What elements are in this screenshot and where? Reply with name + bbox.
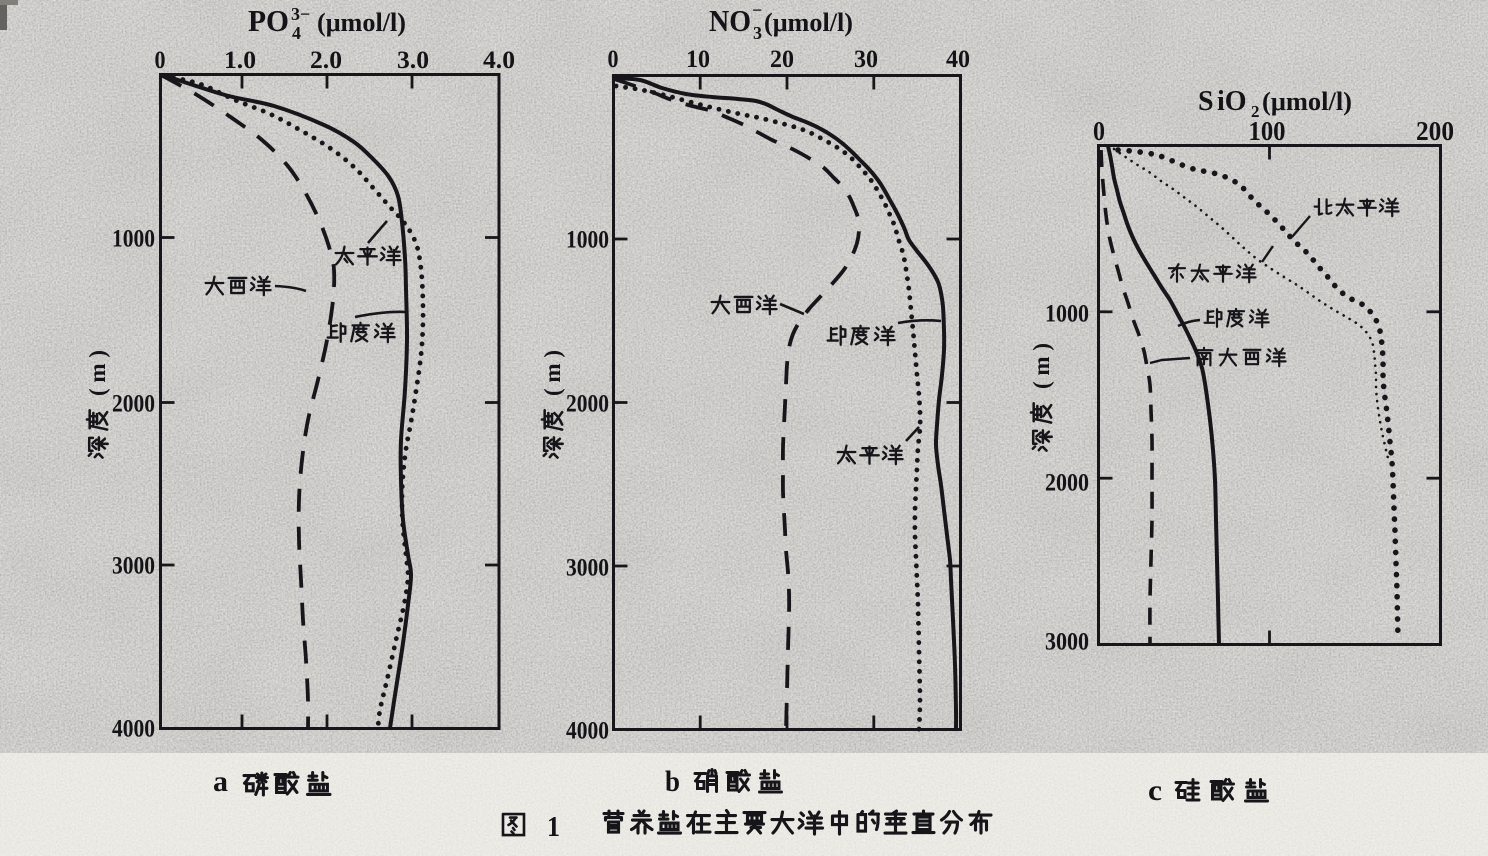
svg-text:0: 0: [608, 44, 619, 73]
svg-text:1000: 1000: [112, 224, 155, 253]
svg-text:S: S: [1198, 86, 1214, 117]
svg-text:40: 40: [946, 44, 970, 73]
svg-text:3000: 3000: [1045, 627, 1089, 656]
svg-text:(μmol/l): (μmol/l): [764, 7, 853, 37]
svg-text:3: 3: [753, 23, 762, 43]
svg-text:0: 0: [1093, 116, 1105, 146]
svg-text:200: 200: [1416, 116, 1454, 146]
svg-text:(μmol/l): (μmol/l): [317, 7, 406, 37]
svg-text:2000: 2000: [1045, 468, 1089, 497]
svg-text:4000: 4000: [112, 714, 155, 743]
svg-text:3−: 3−: [291, 4, 310, 24]
svg-text:4: 4: [292, 23, 301, 43]
svg-text:3.0: 3.0: [397, 45, 429, 74]
svg-text:10: 10: [686, 44, 710, 73]
svg-text:(μmol/l): (μmol/l): [1262, 86, 1352, 116]
svg-text:3000: 3000: [566, 553, 609, 582]
svg-text:4.0: 4.0: [483, 45, 515, 74]
svg-text:iO: iO: [1217, 86, 1247, 117]
svg-text:30: 30: [854, 44, 878, 73]
svg-text:( m ): ( m ): [1029, 343, 1054, 389]
svg-text:NO: NO: [709, 3, 751, 38]
svg-text:2.0: 2.0: [310, 45, 342, 74]
svg-text:100: 100: [1249, 116, 1286, 146]
svg-text:1000: 1000: [1045, 299, 1089, 328]
svg-text:b: b: [665, 765, 680, 798]
svg-text:PO: PO: [248, 3, 289, 38]
svg-text:c: c: [1148, 774, 1162, 807]
svg-text:4000: 4000: [566, 716, 609, 745]
svg-text:3000: 3000: [112, 551, 155, 580]
svg-text:2000: 2000: [566, 389, 609, 418]
svg-text:1: 1: [547, 811, 560, 843]
svg-text:( m ): ( m ): [85, 350, 110, 396]
svg-text:a: a: [213, 765, 228, 798]
svg-text:2000: 2000: [112, 389, 155, 418]
svg-text:−: −: [752, 0, 762, 20]
svg-text:1.0: 1.0: [224, 45, 256, 74]
svg-text:1000: 1000: [566, 225, 609, 254]
svg-text:( m ): ( m ): [540, 350, 565, 396]
svg-text:20: 20: [770, 44, 794, 73]
svg-text:0: 0: [155, 45, 166, 74]
